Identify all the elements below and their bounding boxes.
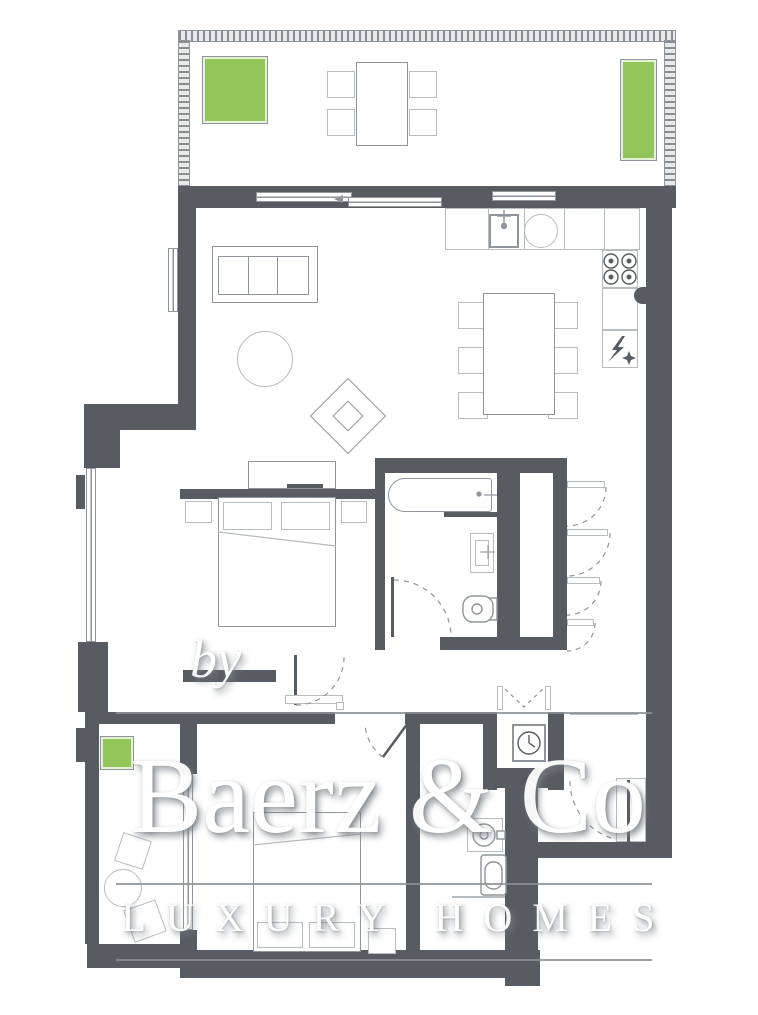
watermark-line bbox=[116, 883, 652, 885]
double-door-icon bbox=[505, 689, 543, 707]
door-arc bbox=[394, 580, 451, 637]
sliding-door-arrow-icon bbox=[334, 195, 343, 203]
closet-door-arc bbox=[567, 581, 601, 615]
sliding-window bbox=[348, 197, 442, 207]
tub-faucet-icon bbox=[476, 491, 497, 496]
toilet-icon bbox=[463, 596, 497, 622]
washbasin-tap-icon bbox=[480, 545, 495, 559]
bed-blanket-line bbox=[218, 532, 336, 546]
door-arc bbox=[296, 657, 344, 705]
hob-icon bbox=[604, 254, 636, 284]
watermark-brand: Baerz & Co bbox=[64, 740, 712, 853]
fridge-icon bbox=[608, 336, 636, 365]
window bbox=[168, 248, 178, 312]
watermark-line bbox=[116, 712, 652, 714]
watermark-by: by bbox=[190, 628, 241, 690]
terrace-door-window bbox=[492, 191, 556, 201]
watermark-tagline: LUXURY HOMES bbox=[64, 894, 712, 941]
closet-door-arc bbox=[567, 487, 606, 526]
plan-annotations bbox=[0, 0, 758, 1015]
kitchen-faucet-icon bbox=[497, 210, 511, 229]
window bbox=[86, 468, 96, 642]
floor-plan: by Baerz & Co LUXURY HOMES bbox=[0, 0, 758, 1015]
closet-door-arc bbox=[567, 533, 610, 576]
closet-door-arc bbox=[567, 623, 595, 651]
watermark-line bbox=[116, 959, 652, 961]
toilet-icon bbox=[481, 855, 506, 895]
